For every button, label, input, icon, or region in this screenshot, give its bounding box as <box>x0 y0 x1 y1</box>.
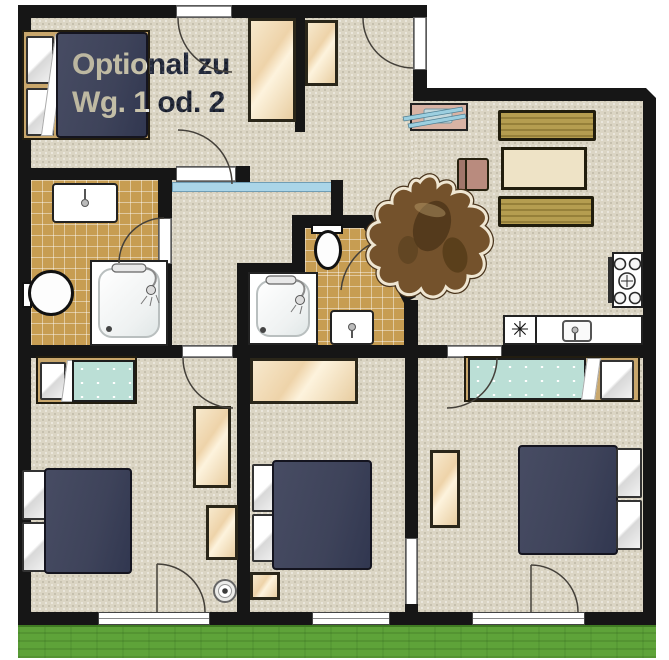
sofa-north <box>498 110 596 141</box>
outer-wall-bottom-3 <box>390 612 472 625</box>
wall-bath1-east-top <box>158 180 172 218</box>
shower-bathroom-1 <box>90 260 168 346</box>
nightstand-room-b <box>250 572 280 600</box>
sink-bathroom-1 <box>52 183 118 223</box>
wardrobe-room-a-1 <box>193 406 231 488</box>
wall-bath2-east <box>404 295 418 358</box>
outer-wall-bottom-4 <box>585 612 656 625</box>
wall-room-b-c-bottom <box>405 604 418 612</box>
wardrobe-bedroom1 <box>248 18 296 122</box>
sink-bathroom-2 <box>330 310 374 345</box>
bed-double-c-pillow-top <box>616 448 642 498</box>
garden-lawn <box>18 625 656 658</box>
garden-door-room-c <box>472 612 585 625</box>
shower-1-drain <box>106 326 112 332</box>
glass-door-bedroom1 <box>176 166 236 182</box>
opening-room-b-c <box>405 538 418 608</box>
toilet-2-bowl <box>314 230 342 270</box>
entry-wall-stub-top <box>413 5 427 17</box>
optional-note-line1: Optional zu <box>72 46 230 84</box>
wall-mid-2 <box>233 345 417 358</box>
dishwasher-symbol: ✳ <box>511 319 529 341</box>
shower-2-drain <box>260 327 266 333</box>
shower-bathroom-2 <box>248 272 318 345</box>
outer-wall-bottom-1 <box>18 612 98 625</box>
bed-double-b-duvet <box>272 460 372 570</box>
armchair-back <box>459 160 467 189</box>
wardrobe-entry-hall <box>305 20 338 86</box>
wall-room-a-b <box>237 358 250 612</box>
wall-bedroom1-east <box>295 18 305 132</box>
outer-wall-bottom-2 <box>210 612 312 625</box>
outer-wall-right <box>643 99 656 625</box>
wardrobe-room-c <box>430 450 460 528</box>
bed-double-c-pillow-bottom <box>616 500 642 550</box>
bed-single-c-blanket <box>468 358 586 400</box>
coffee-table <box>501 147 587 190</box>
outer-wall-top-east <box>232 5 413 18</box>
outer-wall-top-west <box>18 5 176 18</box>
toilet-1-bowl <box>28 270 74 316</box>
bed-double-a-duvet <box>44 468 132 574</box>
wall-stub-glass-east <box>331 180 343 215</box>
wardrobe-room-b <box>250 358 358 404</box>
dishwasher: ✳ <box>503 315 537 345</box>
wall-bedroom1-south <box>18 168 176 180</box>
door-bathroom-1 <box>158 218 172 264</box>
kitchen-counter <box>535 315 643 345</box>
door-top-bedroom1 <box>176 5 232 18</box>
floor-plan: ✳ Optional zu Wg. 1 od. 2 <box>0 0 669 660</box>
armchair <box>457 158 489 191</box>
door-room-a <box>182 345 233 358</box>
garden-door-room-a <box>98 612 210 625</box>
tv-sideboard <box>410 103 468 131</box>
bed-double-c-duvet <box>518 445 618 555</box>
bed-single-c-pillow <box>600 360 634 400</box>
sofa-south <box>498 196 594 227</box>
wardrobe-room-a-2 <box>206 505 238 560</box>
optional-note: Optional zu Wg. 1 od. 2 <box>72 46 230 122</box>
window-room-b <box>312 612 390 625</box>
wall-mid-3 <box>417 345 447 358</box>
entry-door <box>413 17 427 70</box>
wall-room-b-c-top <box>405 358 418 538</box>
wall-stub-glass-west <box>236 166 250 182</box>
bed-single-a-blanket <box>72 360 135 402</box>
stove <box>612 252 643 308</box>
living-top-wall <box>413 88 645 101</box>
kitchen-sink <box>562 320 592 342</box>
glass-partition <box>172 182 337 192</box>
optional-note-line2: Wg. 1 od. 2 <box>72 84 230 122</box>
